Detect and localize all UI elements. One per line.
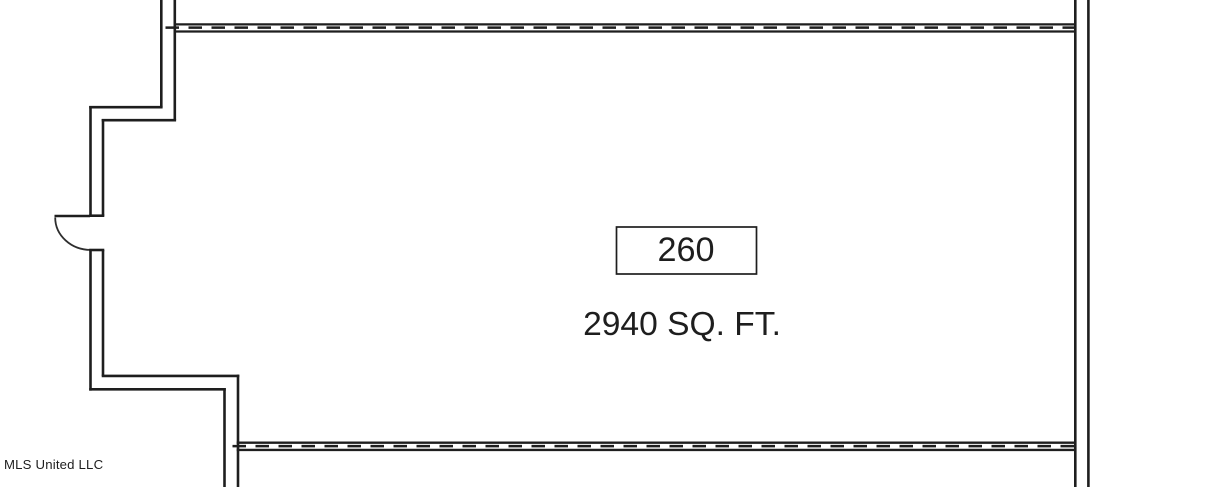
- svg-text:MLS United LLC: MLS United LLC: [4, 457, 104, 472]
- svg-text:260: 260: [657, 231, 714, 269]
- svg-text:2940 SQ. FT.: 2940 SQ. FT.: [583, 306, 781, 343]
